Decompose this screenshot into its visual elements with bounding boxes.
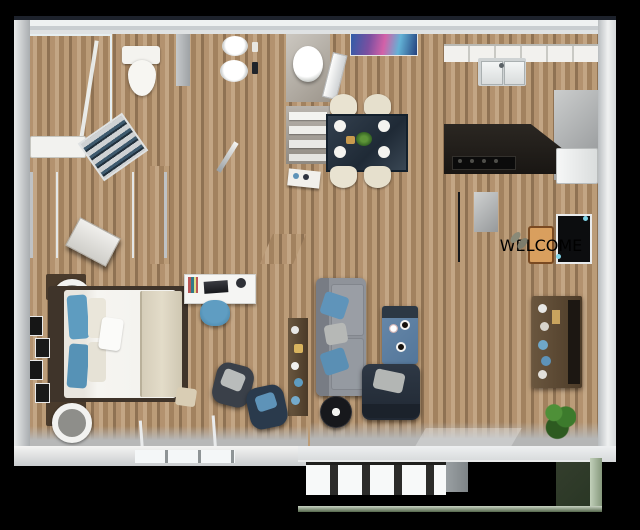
wall-entry-bottom [545,254,602,267]
shelf-decor-2 [294,344,303,353]
desk-books [188,277,198,293]
wc-toilet [293,46,323,82]
wall-closet-bedroom [14,262,176,272]
hall-shelf-item-blue [293,173,299,179]
wall-coat-closet-bottom [430,262,506,272]
wall-bath1-right [166,26,178,166]
shelf-decor-1 [291,326,299,334]
bed-pillow-blue-2 [66,343,89,388]
wall-dining-kitchen [430,24,442,180]
floor-plan-render: WELCOME [0,0,640,530]
pouf [175,387,197,408]
console-books [552,310,560,324]
vessel-sink-2 [220,60,248,82]
bed-folded-throw [140,291,182,397]
outer-wall-right [598,20,616,462]
coffee-cup-1 [389,324,398,333]
wall-bath2-right [276,26,286,166]
shelf-decor-3 [291,362,299,370]
place-setting-2 [378,120,390,132]
linen-shelf-1 [289,112,327,120]
wall-coat-closet-right [496,186,506,270]
wall-wc-linen-divider [282,100,330,107]
hall-shelf-item-dark [303,174,309,180]
coat-closet-pole [458,192,460,262]
patio-exterior-windows [306,462,446,495]
console-decor-3 [538,340,548,350]
wall-dining-left-upper [328,24,338,54]
vessel-sink-1 [222,36,248,56]
outer-wall-top [14,16,616,34]
desk-chair [200,300,230,326]
wall-bath1-bottom-b [128,158,222,168]
dining-chair-4 [364,166,391,188]
vanity-accessory-1 [252,42,258,52]
outer-wall-left [14,20,30,462]
wall-bedroom-top [176,262,256,272]
wall-frame-4 [35,383,50,403]
tv-screen-edge [568,300,580,384]
coffee-cup-3 [396,342,406,352]
wall-coat-closet-left [430,186,440,270]
table-bread-basket [346,136,355,144]
bedroom-window [135,450,235,463]
console-decor-4 [541,356,551,366]
shelf-decor-5 [291,396,300,405]
wall-frame-1 [28,316,43,336]
glass-railing-bottom [298,506,602,512]
patio-sliding-door-exterior [446,462,468,492]
cooktop-burner-3 [482,159,486,163]
sink-faucet [499,63,504,68]
bathtub [30,136,86,158]
wall-kitchen-bottom [438,178,602,190]
wall-bedroom-living [304,262,316,452]
vanity-accessory-2 [252,62,258,74]
cooktop-burner-2 [470,159,474,163]
glass-railing-right [590,458,602,512]
abstract-wall-art [350,33,418,56]
nightstand-lamp-bottom [52,403,92,443]
dining-chair-3 [330,166,357,188]
linen-shelf-2 [289,126,327,134]
desk-lamp [236,278,246,288]
coffee-cup-2 [400,320,410,330]
closet-post-left [56,172,58,258]
console-decor-5 [538,370,547,379]
sofa-pillow-gray [323,322,348,346]
shelf-decor-4 [294,378,303,387]
closet-post-right [132,172,134,258]
place-setting-1 [334,120,346,132]
door-hinge-accent-2 [583,216,588,221]
wall-frame-2 [35,338,50,358]
dining-chair-2 [364,94,391,116]
wall-bath2-bottom [252,158,336,168]
wall-frame-3 [28,360,43,380]
place-setting-3 [334,146,346,158]
floor-fan-clock [320,396,352,428]
bed-pillow-blue-1 [66,294,89,339]
coffee-table-dark-end [382,306,418,318]
cooktop-burner-1 [458,159,462,163]
linen-shelf-3 [289,140,327,148]
table-plant-centerpiece [356,132,372,146]
bed-pillow-accent [98,317,124,352]
cooktop-burner-4 [494,159,498,163]
coat-closet-inner-wall [474,192,498,232]
console-decor-2 [540,322,549,331]
console-decor-1 [538,304,547,313]
place-setting-4 [378,146,390,158]
glass-door-reflection [414,428,522,448]
sink-basin-right [504,61,525,85]
wall-bath1-bottom-a [14,158,102,168]
wall-dining-left-lower [328,94,338,120]
desk-laptop [204,280,229,294]
